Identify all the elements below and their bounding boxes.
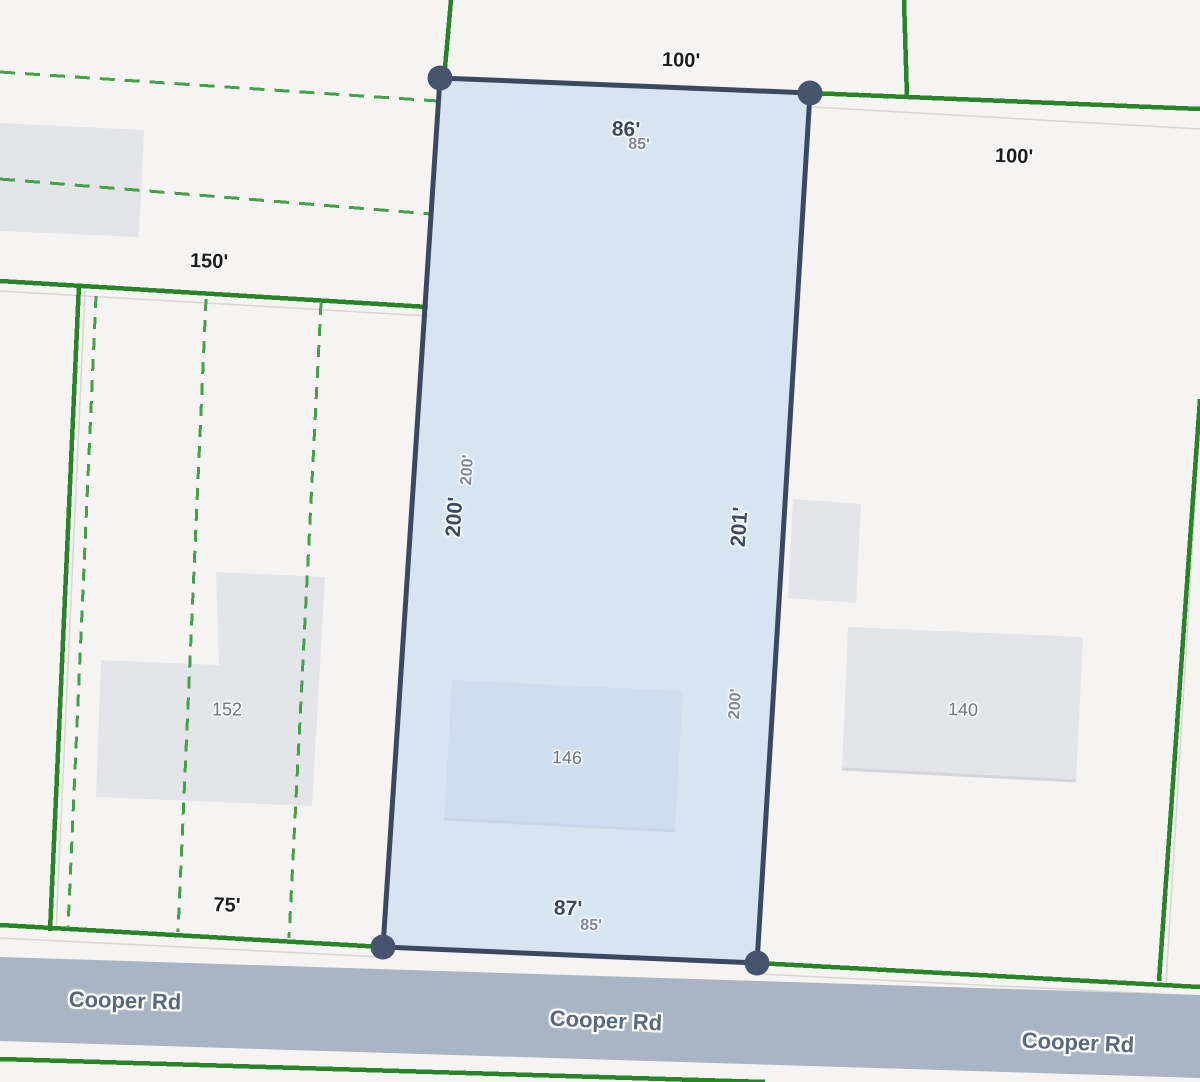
parcel-vertex-handle-topright[interactable] [798, 81, 823, 106]
map-canvas[interactable]: 100' 86' 85' 100' 150' 200' 200' 201' 20… [0, 0, 1200, 1082]
building-footprint-140 [842, 627, 1083, 781]
selected-parcel[interactable] [383, 78, 810, 963]
building-footprint-right-small [788, 499, 861, 603]
parcel-map-layer [0, 0, 1200, 1082]
parcel-vertex-handle-topleft[interactable] [428, 66, 453, 91]
parcel-vertex-handle-bottomleft[interactable] [371, 935, 396, 960]
building-footprint-topleft [0, 123, 144, 237]
parcel-vertex-handle-bottomright[interactable] [745, 951, 770, 976]
